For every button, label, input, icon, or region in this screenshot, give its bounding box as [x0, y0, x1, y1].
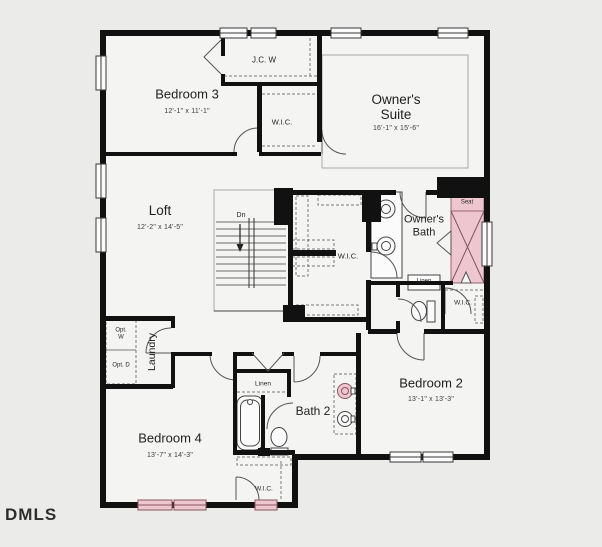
dmls-watermark: DMLS [5, 505, 57, 525]
bath2-sink-2 [338, 412, 353, 427]
optional-dryer-label: Opt. D [112, 363, 130, 370]
bath2-linen-label: Linen [255, 380, 271, 387]
optional-washer-label: Opt. W [112, 327, 130, 340]
bath2-label: Bath 2 [296, 405, 331, 419]
owners-suite-label-1: Owner's [371, 92, 420, 108]
floor-plan-page: Bedroom 3 12'-1" x 11'-1" J.C. W W.I.C. … [0, 0, 602, 547]
wall-block [362, 192, 381, 222]
loft-dims: 12'-2" x 14'-5" [137, 224, 183, 232]
owners-suite-label-2: Suite [381, 107, 412, 123]
wall-block [258, 448, 270, 456]
owners-toilet [412, 302, 427, 321]
wic-center-label: W.I.C. [338, 253, 358, 262]
wic-right-label: W.I.C. [454, 299, 472, 306]
bath2-toilet [271, 428, 287, 447]
bedroom4-dims: 13'-7" x 14'-3" [147, 452, 193, 460]
wic-bottom-label: W.I.C. [255, 485, 273, 492]
wall-block [274, 188, 293, 225]
loft-label: Loft [149, 203, 172, 219]
wic-top-label: W.I.C. [272, 119, 292, 128]
laundry-label: Laundry [146, 333, 158, 371]
owners-bath-label-1: Owner's [404, 214, 444, 227]
bedroom3-dims: 12'-1" x 11'-1" [164, 108, 210, 116]
owners-bath-label-2: Bath [413, 227, 436, 240]
shower-seat-label: Seat [461, 200, 473, 207]
bath2-sink-highlighted [338, 384, 353, 399]
owners-sink-2 [377, 237, 395, 255]
owners-suite-dims: 16'-1" x 15'-6" [373, 125, 419, 133]
bedroom2-dims: 13'-1" x 13'-3" [408, 396, 454, 404]
floor-plan-drawing [0, 0, 602, 547]
owners-linen-label: Linen [417, 279, 432, 286]
bedroom4-label: Bedroom 4 [138, 432, 202, 447]
stairs-down-label: Dn [237, 212, 246, 220]
wall-block [283, 305, 305, 322]
wall-block [437, 177, 484, 198]
bedroom3-label: Bedroom 3 [155, 88, 219, 103]
jcw-closet-label: J.C. W [252, 55, 276, 64]
bedroom2-label: Bedroom 2 [399, 377, 463, 392]
